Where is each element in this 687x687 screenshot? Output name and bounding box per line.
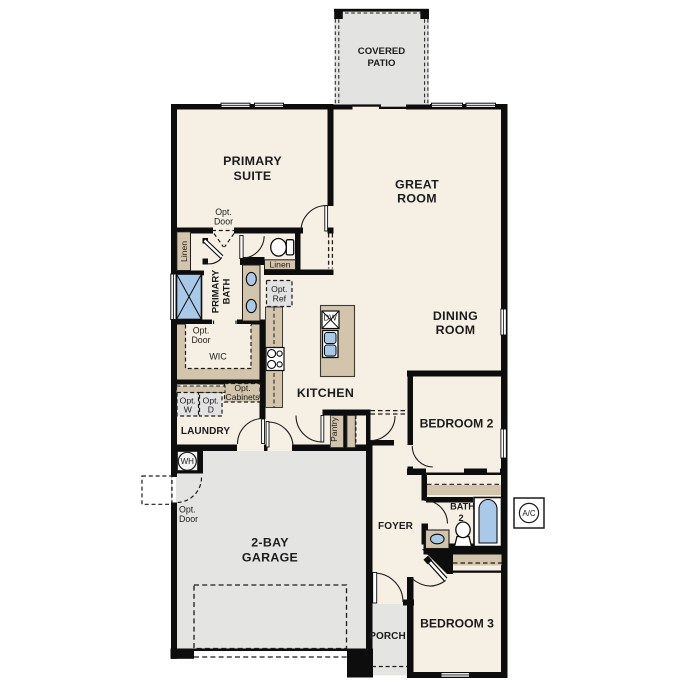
svg-text:DINING: DINING: [433, 309, 478, 323]
svg-text:FOYER: FOYER: [378, 521, 414, 532]
svg-text:BATH: BATH: [450, 502, 475, 512]
svg-text:Opt.: Opt.: [179, 505, 196, 515]
svg-text:Linen: Linen: [179, 241, 189, 262]
svg-text:Linen: Linen: [269, 260, 290, 270]
svg-text:COVERED: COVERED: [358, 46, 406, 57]
svg-text:PATIO: PATIO: [368, 58, 396, 69]
svg-text:Cabinets: Cabinets: [226, 392, 260, 402]
svg-text:Door: Door: [191, 335, 210, 345]
svg-text:Opt.: Opt.: [271, 284, 287, 294]
svg-text:Opt.: Opt.: [215, 207, 232, 217]
svg-text:Opt.: Opt.: [193, 325, 210, 335]
svg-text:WIC: WIC: [209, 352, 227, 362]
svg-text:Pantry: Pantry: [329, 416, 339, 442]
svg-text:KITCHEN: KITCHEN: [297, 386, 354, 400]
svg-text:GARAGE: GARAGE: [242, 551, 298, 565]
svg-text:D: D: [208, 405, 214, 415]
svg-text:2: 2: [458, 513, 463, 523]
svg-text:DW: DW: [324, 314, 338, 323]
svg-text:PRIMARY: PRIMARY: [211, 269, 222, 313]
svg-text:Door: Door: [179, 514, 198, 524]
svg-text:BEDROOM 3: BEDROOM 3: [420, 617, 494, 631]
svg-text:PORCH: PORCH: [369, 631, 406, 642]
svg-text:LAUNDRY: LAUNDRY: [181, 426, 230, 437]
svg-text:GREAT: GREAT: [395, 178, 439, 192]
svg-text:A/C: A/C: [522, 509, 536, 518]
svg-text:W: W: [184, 405, 193, 415]
svg-text:WH: WH: [181, 457, 195, 466]
svg-text:BATH: BATH: [222, 279, 233, 305]
svg-text:Door: Door: [214, 217, 233, 227]
svg-text:2-BAY: 2-BAY: [251, 536, 289, 550]
svg-text:SUITE: SUITE: [234, 169, 272, 183]
svg-text:ROOM: ROOM: [436, 323, 476, 337]
svg-text:Ref: Ref: [273, 293, 287, 303]
svg-text:PRIMARY: PRIMARY: [223, 154, 282, 168]
svg-text:ROOM: ROOM: [397, 192, 437, 206]
svg-text:BEDROOM 2: BEDROOM 2: [420, 417, 494, 431]
